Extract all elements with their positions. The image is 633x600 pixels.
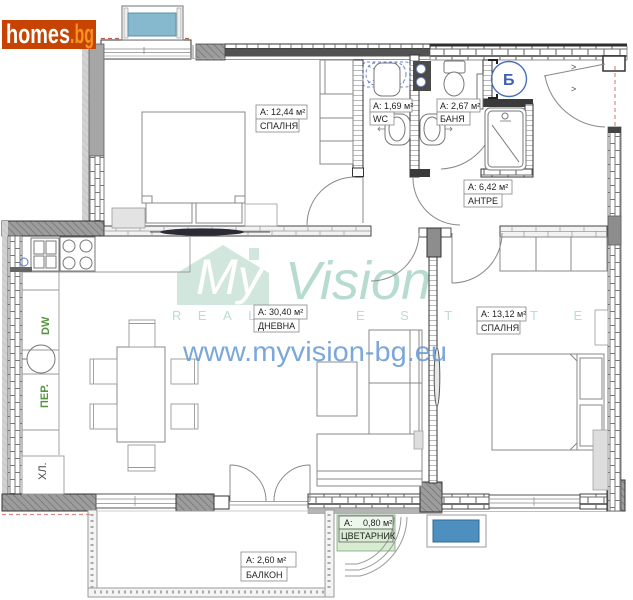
- svg-text:0,80 м²: 0,80 м²: [363, 518, 392, 528]
- svg-text:ПЕР.: ПЕР.: [39, 384, 51, 408]
- svg-text:А: 12,44 м²: А: 12,44 м²: [260, 107, 305, 117]
- svg-text:А: 6,42 м²: А: 6,42 м²: [468, 182, 508, 192]
- svg-text:А: 2,67 м²: А: 2,67 м²: [440, 101, 480, 111]
- svg-text:Vision: Vision: [285, 251, 431, 311]
- svg-text:>: >: [571, 84, 576, 94]
- svg-text:>: >: [571, 62, 576, 72]
- svg-text:А: 13,12 м²: А: 13,12 м²: [481, 309, 526, 319]
- svg-text:А: 30,40 м²: А: 30,40 м²: [258, 307, 303, 317]
- svg-text:АНТРЕ: АНТРЕ: [468, 196, 498, 206]
- svg-text:БАЛКОН: БАЛКОН: [246, 570, 282, 580]
- svg-text:СПАЛНЯ: СПАЛНЯ: [481, 323, 519, 333]
- svg-text:.bg: .bg: [70, 19, 94, 49]
- svg-text:БАНЯ: БАНЯ: [440, 114, 465, 124]
- svg-text:Б: Б: [503, 72, 515, 89]
- svg-text:ЦВЕТАРНИК: ЦВЕТАРНИК: [341, 531, 396, 541]
- svg-text:DW: DW: [40, 316, 52, 335]
- svg-text:А:: А:: [344, 518, 353, 528]
- svg-text:А: 2,60 м²: А: 2,60 м²: [246, 555, 286, 565]
- svg-text:WC: WC: [373, 114, 388, 124]
- svg-text:My: My: [196, 249, 266, 305]
- svg-text:ДНЕВНА: ДНЕВНА: [258, 321, 295, 331]
- svg-text:СПАЛНЯ: СПАЛНЯ: [260, 121, 298, 131]
- svg-text:homes: homes: [6, 19, 70, 49]
- svg-text:www.myvision-bg.eu: www.myvision-bg.eu: [182, 336, 447, 367]
- svg-text:А: 1,69 м²: А: 1,69 м²: [373, 101, 413, 111]
- svg-text:ХЛ.: ХЛ.: [37, 462, 49, 480]
